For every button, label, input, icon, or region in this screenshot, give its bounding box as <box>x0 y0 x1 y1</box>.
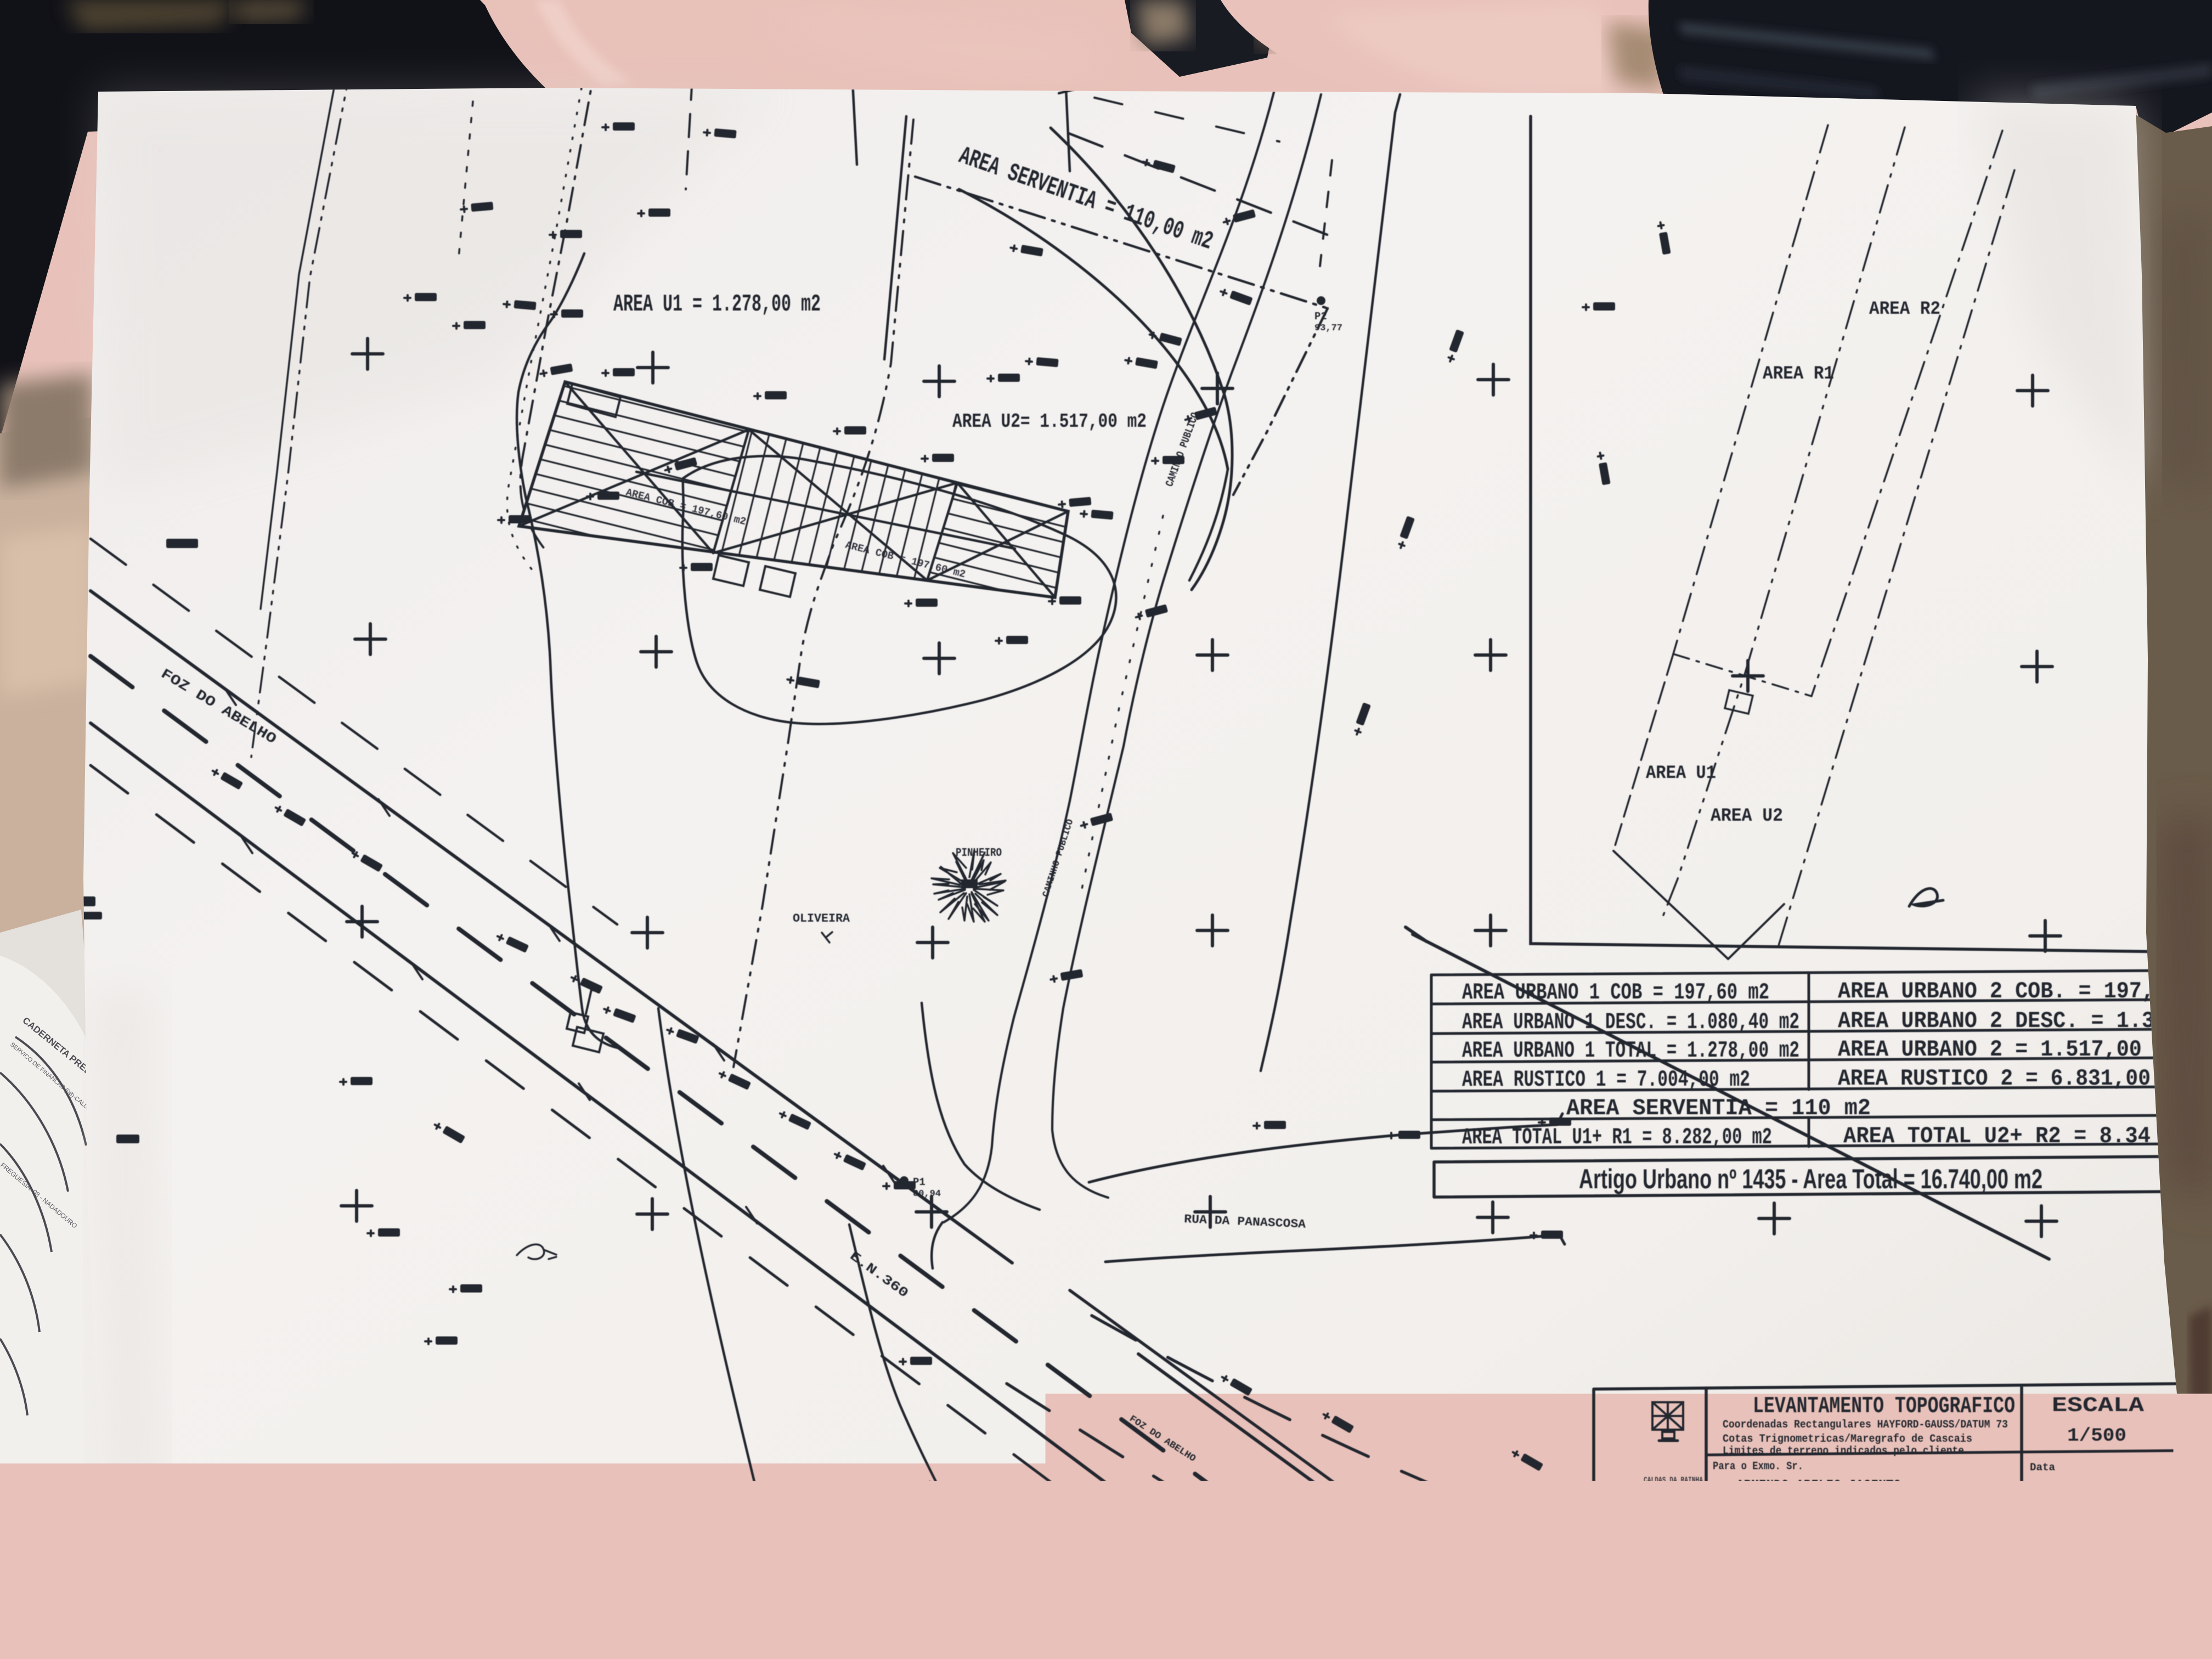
svg-text:AREA U1: AREA U1 <box>1646 763 1716 784</box>
svg-text:AREA R2: AREA R2 <box>1869 299 1940 320</box>
svg-text:AREA SERVENTIA = 110 m2: AREA SERVENTIA = 110 m2 <box>1566 1095 1871 1121</box>
svg-text:Coordenadas Rectangulares HAYF: Coordenadas Rectangulares HAYFORD-GAUSS/… <box>1723 1419 2008 1431</box>
svg-text:Data: Data <box>2030 1462 2055 1474</box>
svg-text:Local: Local <box>1713 1517 1747 1530</box>
svg-text:2500 - 123 Caldas da Rainha: 2500 - 123 Caldas da Rainha <box>1621 1530 1706 1538</box>
svg-text:AREA U2= 1.517,00 m2: AREA U2= 1.517,00 m2 <box>952 410 1147 433</box>
svg-text:AREA TOTAL U2+ R2 = 8.34: AREA TOTAL U2+ R2 = 8.34 <box>1843 1123 2151 1149</box>
svg-text:15/04/20: 15/04/20 <box>2053 1483 2152 1500</box>
svg-text:Rua Dr. Manuel Carvalho-N 35a: Rua Dr. Manuel Carvalho-N 35a <box>1618 1520 1707 1528</box>
svg-text:AREA R1: AREA R1 <box>1763 364 1834 385</box>
svg-text:AREA URBANO 2 COB. = 197,6: AREA URBANO 2 COB. = 197,6 <box>1838 978 2167 1005</box>
svg-text:AREA TOTAL U1+ R1 = 8.282,00 m: AREA TOTAL U1+ R1 = 8.282,00 m2 <box>1462 1124 1772 1150</box>
svg-text:AREA RUSTICO 1 = 7.004,00 m2: AREA RUSTICO 1 = 7.004,00 m2 <box>1462 1066 1750 1093</box>
svg-text:1/500: 1/500 <box>2067 1426 2126 1447</box>
svg-text:Cotas Trignometricas/Maregrafo: Cotas Trignometricas/Maregrafo de Cascai… <box>1723 1433 1972 1446</box>
svg-text:AREA URBANO 2 DESC. = 1.31: AREA URBANO 2 DESC. = 1.31 <box>1838 1008 2167 1034</box>
svg-text:80,94: 80,94 <box>913 1189 941 1199</box>
svg-text:AREA RUSTICO 2 = 6.831,00: AREA RUSTICO 2 = 6.831,00 <box>1838 1065 2151 1092</box>
svg-text:Artigo Urbano nº 1435 - Area T: Artigo Urbano nº 1435 - Area Total = 16.… <box>1579 1164 2042 1194</box>
svg-text:AREA URBANO 1 DESC. = 1.080,40: AREA URBANO 1 DESC. = 1.080,40 m2 <box>1462 1009 1799 1035</box>
svg-text:LUIS JACINTO: LUIS JACINTO <box>1736 1493 1829 1510</box>
svg-text:P2: P2 <box>1314 311 1327 323</box>
svg-text:AREA URBANO 2 = 1.517,00 m: AREA URBANO 2 = 1.517,00 m <box>1838 1036 2167 1063</box>
svg-text:P1: P1 <box>913 1176 926 1188</box>
svg-text:Clien. N: Clien. N <box>2027 1526 2075 1538</box>
svg-text:ARMINDO ABILIO JACINTO: ARMINDO ABILIO JACINTO <box>1736 1478 1901 1495</box>
svg-text:OLIVEIRA: OLIVEIRA <box>793 912 850 926</box>
svg-text:PINHEIRO: PINHEIRO <box>956 847 1002 860</box>
svg-text:93,77: 93,77 <box>1314 323 1342 334</box>
svg-text:ESCALA: ESCALA <box>2052 1394 2144 1418</box>
svg-text:AREA U2: AREA U2 <box>1711 806 1783 827</box>
svg-text:LEVANTAMENTO TOPOGRAFICO: LEVANTAMENTO TOPOGRAFICO <box>1753 1393 2015 1419</box>
svg-text:AREA URBANO 1 TOTAL = 1.278,00: AREA URBANO 1 TOTAL = 1.278,00 m2 <box>1462 1037 1799 1064</box>
svg-text:AREA U1 = 1.278,00 m2: AREA U1 = 1.278,00 m2 <box>613 291 821 318</box>
svg-text:Para o Exmo. Sr.: Para o Exmo. Sr. <box>1713 1460 1803 1473</box>
svg-text:CALDAS DA RAINHA: CALDAS DA RAINHA <box>1644 1476 1703 1485</box>
svg-text:AREA URBANO 1 COB = 197,60 m2: AREA URBANO 1 COB = 197,60 m2 <box>1462 979 1769 1006</box>
svg-text:Limites de terreno indicados p: Limites de terreno indicados pelo client… <box>1723 1445 1964 1458</box>
